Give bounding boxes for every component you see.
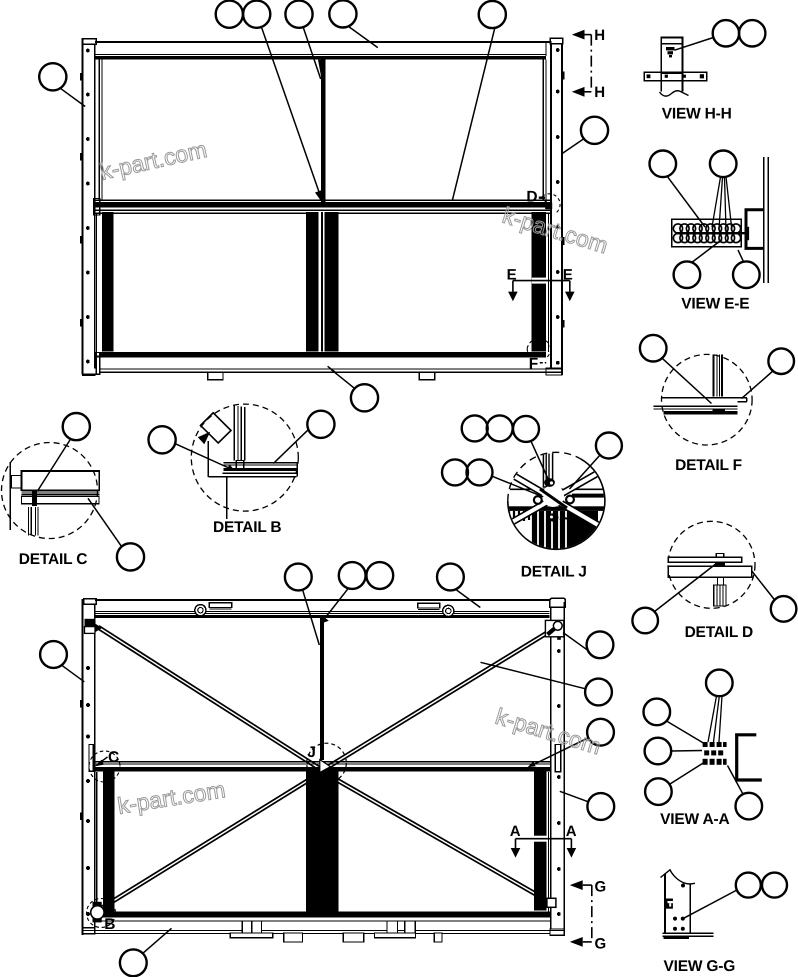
svg-text:H: H	[594, 84, 605, 101]
svg-text:A: A	[566, 823, 577, 840]
svg-text:VIEW H-H: VIEW H-H	[662, 106, 732, 123]
svg-text:DETAIL D: DETAIL D	[685, 624, 753, 641]
svg-text:DETAIL B: DETAIL B	[213, 519, 281, 536]
svg-text:DETAIL J: DETAIL J	[521, 563, 587, 580]
svg-text:H: H	[594, 27, 605, 44]
svg-text:DETAIL C: DETAIL C	[19, 551, 87, 568]
svg-text:VIEW A-A: VIEW A-A	[660, 811, 729, 828]
svg-text:VIEW G-G: VIEW G-G	[664, 958, 736, 975]
svg-text:G: G	[595, 879, 607, 896]
svg-text:G: G	[595, 936, 607, 953]
svg-text:DETAIL F: DETAIL F	[675, 457, 742, 474]
svg-text:A: A	[510, 823, 521, 840]
svg-text:VIEW E-E: VIEW E-E	[681, 295, 749, 312]
svg-text:F: F	[529, 355, 538, 372]
svg-text:D: D	[526, 189, 537, 206]
